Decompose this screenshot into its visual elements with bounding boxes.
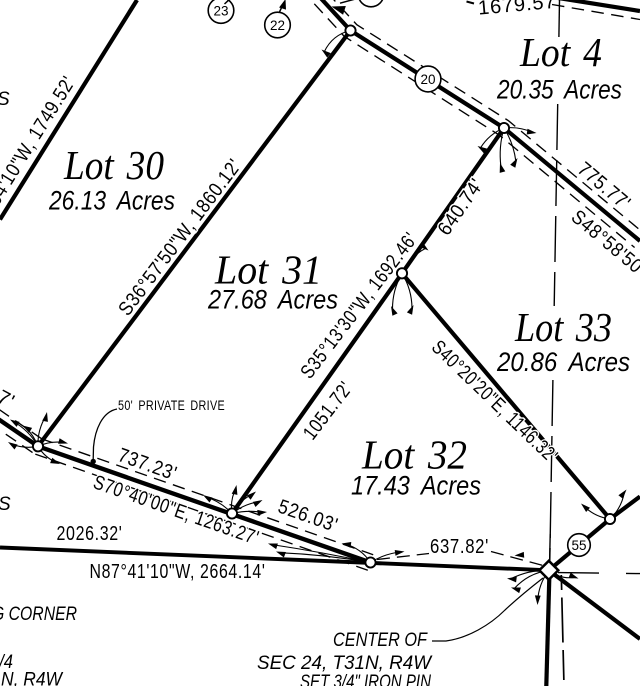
svg-text:S: S bbox=[0, 494, 11, 515]
svg-text:CENTER OF: CENTER OF bbox=[333, 630, 428, 651]
svg-text:20.86 Acres: 20.86 Acres bbox=[496, 347, 630, 377]
svg-text:Lot 33: Lot 33 bbox=[514, 304, 612, 350]
svg-text:20: 20 bbox=[420, 72, 435, 87]
svg-text:21: 21 bbox=[363, 0, 378, 2]
svg-text:27.68 Acres: 27.68 Acres bbox=[207, 285, 338, 315]
svg-text:50' PRIVATE DRIVE: 50' PRIVATE DRIVE bbox=[118, 398, 225, 413]
svg-text:S: S bbox=[0, 89, 10, 110]
svg-text:G CORNER: G CORNER bbox=[0, 604, 77, 625]
svg-text:23: 23 bbox=[213, 4, 228, 19]
svg-text:SEC 24, T31N, R4W: SEC 24, T31N, R4W bbox=[257, 653, 433, 674]
svg-text:N87°41'10"W, 2664.14': N87°41'10"W, 2664.14' bbox=[90, 561, 266, 583]
svg-text:Lot 30: Lot 30 bbox=[63, 142, 164, 188]
svg-text:Lot 4: Lot 4 bbox=[519, 29, 602, 75]
svg-text:SET 3/4" IRON PIN: SET 3/4" IRON PIN bbox=[300, 672, 431, 686]
svg-text:20.35 Acres: 20.35 Acres bbox=[496, 75, 622, 105]
svg-text:17.43 Acres: 17.43 Acres bbox=[351, 471, 481, 501]
svg-text:22: 22 bbox=[270, 18, 285, 33]
svg-text:55: 55 bbox=[571, 538, 586, 553]
svg-text:2026.32': 2026.32' bbox=[57, 523, 123, 545]
svg-text:26.13 Acres: 26.13 Acres bbox=[48, 186, 175, 216]
svg-text:637.82': 637.82' bbox=[430, 536, 489, 558]
svg-text:N, R4W: N, R4W bbox=[1, 670, 64, 686]
